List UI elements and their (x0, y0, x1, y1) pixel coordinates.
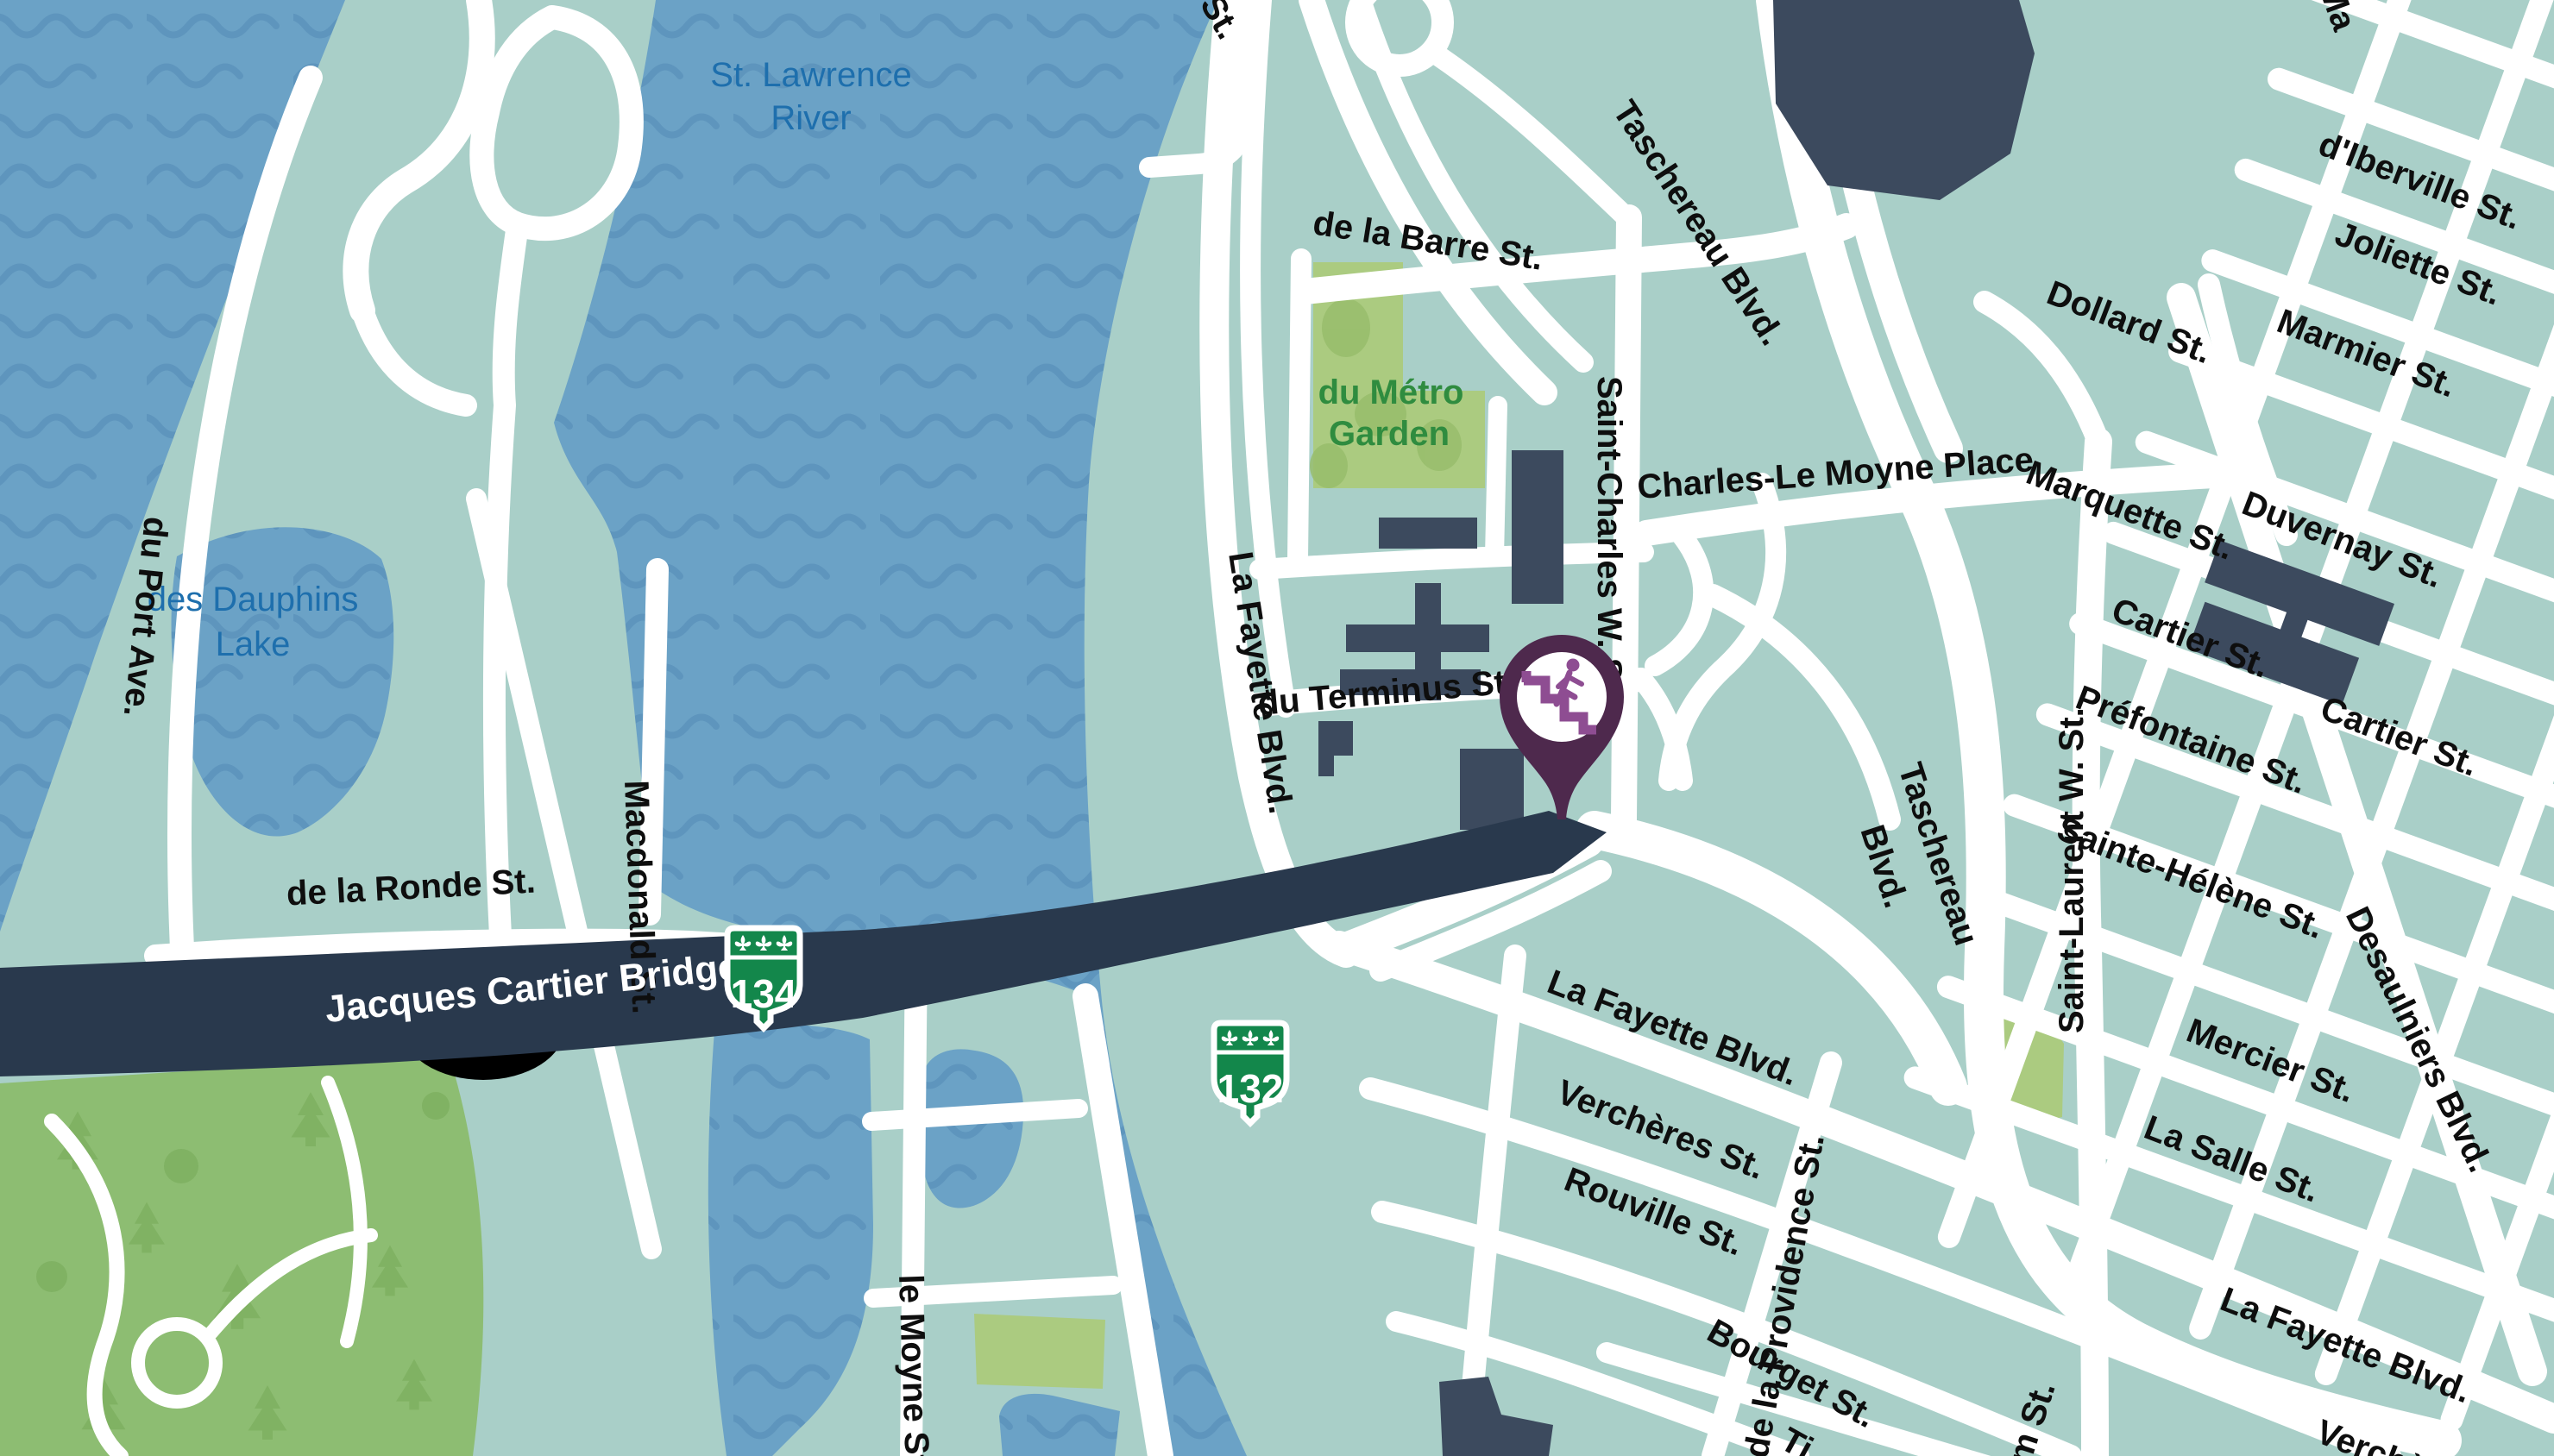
label-des-dauphins-lake-1: des Dauphins (148, 581, 359, 618)
route-132-shield: 132 (1214, 1023, 1286, 1123)
label-du-metro-garden-2: Garden (1329, 415, 1450, 453)
building (1512, 450, 1563, 604)
route-134-shield: 134 (727, 928, 800, 1028)
label-des-dauphins-lake-2: Lake (216, 625, 291, 663)
label-du-metro-garden-1: du Métro (1318, 373, 1464, 411)
label-le-moyne-st: le Moyne St. (891, 1274, 936, 1456)
label-st-lawrence-river-2: River (771, 99, 851, 137)
label-st-lawrence-river-1: St. Lawrence (710, 56, 911, 94)
route-134-number: 134 (731, 971, 797, 1016)
label-saint-laurent-w-st: Saint-Laurent W. St. (2053, 707, 2091, 1033)
strip-green-patch (974, 1314, 1105, 1389)
map-canvas[interactable]: St. LawrenceRiverdes DauphinsLakedu Port… (0, 0, 2554, 1456)
route-132-number: 132 (1217, 1066, 1284, 1111)
building (1379, 518, 1477, 549)
map-stage: St. LawrenceRiverdes DauphinsLakedu Port… (0, 0, 2554, 1456)
